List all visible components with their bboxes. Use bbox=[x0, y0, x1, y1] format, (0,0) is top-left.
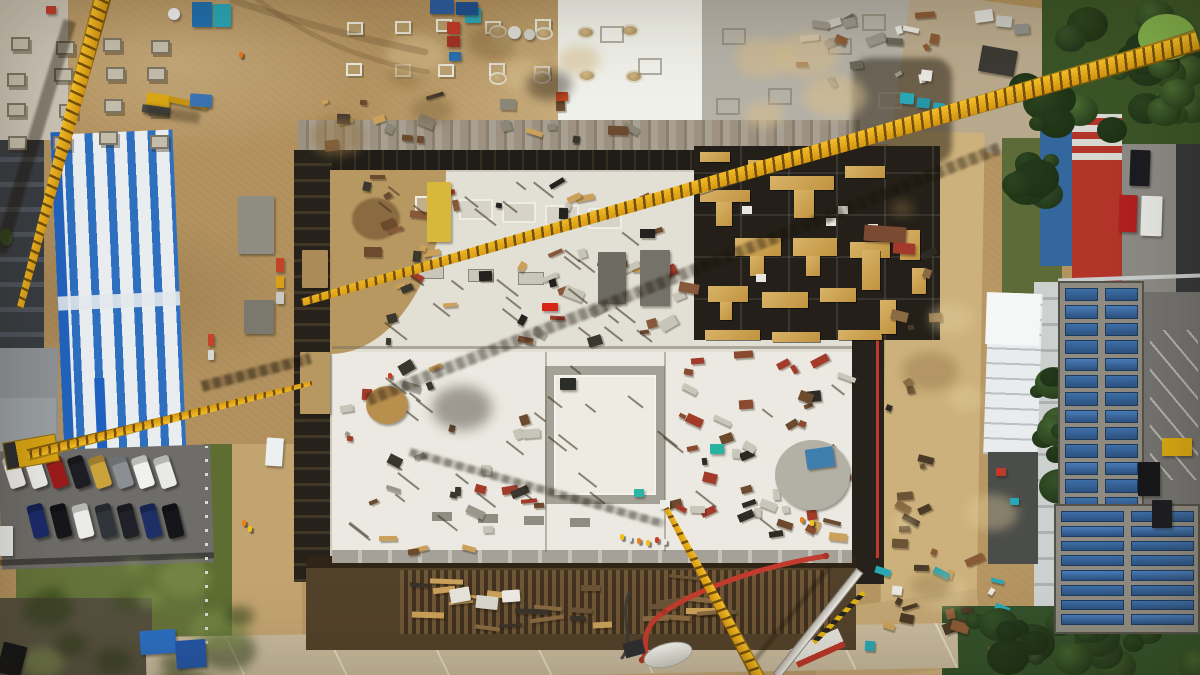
solar-panel bbox=[1105, 358, 1138, 371]
terrain-tone bbox=[912, 573, 951, 600]
plywood-form-panel bbox=[720, 302, 732, 320]
dark-van bbox=[1138, 462, 1160, 496]
concrete-footing bbox=[151, 40, 170, 54]
construction-material bbox=[739, 399, 753, 409]
worker bbox=[663, 539, 667, 545]
tent-bright-top bbox=[985, 292, 1041, 346]
construction-material bbox=[929, 33, 940, 44]
construction-material bbox=[534, 503, 544, 508]
construction-material bbox=[500, 99, 516, 110]
deck-white-bit bbox=[742, 206, 752, 214]
construction-material bbox=[643, 616, 669, 622]
concrete-footing bbox=[11, 37, 30, 51]
worker bbox=[800, 517, 804, 523]
solar-panel bbox=[1065, 288, 1098, 301]
construction-material bbox=[379, 536, 397, 542]
roadside-sign bbox=[208, 334, 214, 346]
concrete-footing bbox=[99, 131, 118, 145]
plywood-form-panel bbox=[716, 202, 732, 226]
construction-material bbox=[914, 564, 929, 570]
concrete-footing bbox=[7, 73, 26, 87]
plywood-form-panel bbox=[708, 286, 748, 302]
construction-material bbox=[690, 506, 705, 513]
tree-canopy bbox=[1123, 634, 1145, 652]
construction-material bbox=[921, 70, 933, 82]
solar-panel bbox=[1065, 444, 1098, 457]
red-equipment bbox=[542, 303, 558, 311]
slab-joint-vertical-1 bbox=[545, 352, 547, 552]
plywood-form-panel bbox=[700, 190, 750, 202]
terrain-tone bbox=[890, 200, 914, 217]
dark-van bbox=[1152, 500, 1172, 528]
trailer-white bbox=[1140, 196, 1162, 237]
car-white bbox=[0, 526, 13, 556]
tarp-bundle bbox=[502, 589, 521, 602]
teal-container bbox=[213, 4, 231, 27]
solar-panel bbox=[1105, 288, 1138, 301]
concrete-footing bbox=[104, 99, 123, 113]
construction-material bbox=[360, 100, 367, 105]
pit-wall-gap bbox=[302, 250, 328, 288]
construction-material bbox=[547, 124, 557, 131]
construction-material bbox=[865, 641, 876, 652]
construction-material bbox=[781, 506, 788, 514]
blue-container bbox=[192, 2, 212, 27]
solar-panel bbox=[1131, 614, 1194, 625]
terrain-tone bbox=[386, 34, 445, 75]
satellite-dish bbox=[168, 8, 180, 20]
plywood-form-panel bbox=[793, 238, 837, 256]
terrain-tone bbox=[55, 633, 87, 656]
slab-marking bbox=[722, 28, 746, 45]
solar-panel bbox=[1061, 511, 1124, 522]
construction-material bbox=[370, 175, 385, 179]
construction-material bbox=[701, 458, 707, 466]
cable-drum bbox=[524, 29, 535, 40]
solar-panel bbox=[1105, 305, 1138, 318]
brown-container bbox=[863, 225, 906, 244]
car-red bbox=[1118, 195, 1137, 233]
construction-material bbox=[430, 578, 463, 584]
solar-panel bbox=[1065, 427, 1098, 440]
teal-machine bbox=[899, 92, 914, 104]
construction-material bbox=[413, 250, 422, 261]
solar-panel bbox=[1105, 340, 1138, 353]
blue-container bbox=[430, 0, 454, 14]
roadside-panel bbox=[276, 292, 284, 304]
worker bbox=[248, 526, 252, 532]
construction-material bbox=[364, 247, 382, 257]
material-bundle bbox=[974, 9, 993, 23]
mini-excavator bbox=[710, 444, 724, 454]
crane-hook-shadow bbox=[432, 386, 492, 430]
roadside-panel bbox=[276, 276, 284, 288]
construction-material bbox=[570, 615, 586, 621]
red-container bbox=[447, 22, 460, 34]
construction-material bbox=[559, 208, 568, 219]
solar-panel bbox=[1065, 392, 1098, 405]
concrete-footing bbox=[535, 27, 553, 40]
plywood-form-panel bbox=[772, 332, 820, 342]
solar-panel bbox=[1131, 600, 1194, 611]
worker bbox=[637, 538, 641, 544]
roadside-sign bbox=[208, 350, 214, 360]
construction-material bbox=[417, 136, 425, 143]
plywood-form-panel bbox=[845, 166, 885, 178]
tree-canopy bbox=[1055, 25, 1086, 52]
plywood-form-panel bbox=[838, 330, 882, 340]
concrete-footing bbox=[150, 135, 169, 149]
teal-equipment bbox=[1010, 498, 1019, 505]
construction-site-aerial-photo bbox=[0, 0, 1200, 675]
concrete-footing bbox=[103, 38, 122, 52]
cable-drum bbox=[508, 26, 521, 39]
site-hut bbox=[238, 196, 274, 254]
solar-panel bbox=[1105, 410, 1138, 423]
solar-panel bbox=[1105, 462, 1138, 475]
concrete-footing bbox=[147, 67, 166, 81]
tree-canopy bbox=[996, 621, 1020, 641]
plywood-form-panel bbox=[770, 176, 834, 190]
red-equipment bbox=[46, 6, 56, 14]
worker bbox=[646, 540, 650, 546]
construction-material bbox=[581, 585, 600, 591]
concrete-footing bbox=[7, 103, 26, 117]
construction-material bbox=[454, 487, 460, 496]
concrete-footing bbox=[346, 63, 362, 76]
solar-panel bbox=[1061, 585, 1124, 596]
worker bbox=[239, 52, 243, 58]
solar-panel bbox=[1065, 462, 1098, 475]
construction-material bbox=[608, 126, 628, 136]
construction-material bbox=[732, 448, 740, 458]
red-equipment bbox=[996, 468, 1006, 476]
material-bundle bbox=[1014, 23, 1030, 34]
deck-white-bit bbox=[756, 274, 766, 282]
construction-material bbox=[892, 539, 909, 549]
plywood-form-panel bbox=[705, 330, 760, 340]
solar-panel bbox=[1131, 585, 1194, 596]
construction-material bbox=[648, 604, 677, 609]
solar-panel bbox=[1065, 375, 1098, 388]
construction-material bbox=[385, 338, 391, 345]
solar-panel bbox=[1131, 541, 1194, 552]
worker bbox=[655, 537, 659, 543]
solar-panel bbox=[1105, 427, 1138, 440]
concrete-pad bbox=[524, 516, 544, 525]
slab-marking bbox=[862, 14, 886, 31]
concrete-footing bbox=[395, 21, 411, 34]
construction-material bbox=[593, 621, 613, 628]
slab-marking bbox=[600, 26, 624, 43]
worker bbox=[620, 534, 624, 540]
terrain-tone bbox=[23, 592, 73, 627]
red-container bbox=[893, 242, 916, 255]
blue-container bbox=[175, 639, 207, 669]
solar-panel bbox=[1105, 375, 1138, 388]
slab-marking bbox=[878, 92, 902, 109]
material-bundle bbox=[995, 15, 1012, 28]
construction-material bbox=[408, 548, 419, 555]
truck-blue bbox=[190, 93, 213, 108]
solar-panel bbox=[1065, 305, 1098, 318]
solar-panel bbox=[1131, 555, 1194, 566]
construction-material bbox=[577, 248, 587, 259]
solar-panel bbox=[1065, 479, 1098, 492]
construction-material bbox=[401, 135, 413, 142]
tree-canopy bbox=[1002, 172, 1032, 198]
equipment-shadow bbox=[526, 70, 572, 100]
construction-material bbox=[897, 491, 913, 500]
terrain-tone bbox=[744, 101, 782, 128]
blue-container bbox=[139, 629, 177, 655]
yellow-vehicle bbox=[1162, 438, 1192, 456]
slab-marking bbox=[716, 98, 740, 115]
construction-material bbox=[573, 136, 581, 144]
red-container bbox=[447, 36, 460, 47]
solar-panel bbox=[1061, 570, 1124, 581]
terrain-tone bbox=[804, 75, 866, 118]
solar-panel bbox=[1065, 323, 1098, 336]
tree-canopy bbox=[1029, 116, 1047, 131]
parking-markings-east bbox=[1150, 330, 1198, 480]
solar-panel bbox=[1065, 340, 1098, 353]
solar-panel bbox=[1131, 570, 1194, 581]
solar-panel bbox=[1105, 479, 1138, 492]
construction-material bbox=[412, 611, 444, 618]
construction-material bbox=[892, 585, 903, 596]
construction-material bbox=[812, 20, 830, 29]
tree-canopy bbox=[1020, 631, 1049, 655]
blue-container bbox=[456, 2, 478, 15]
solar-panel bbox=[1105, 392, 1138, 405]
plywood-form-panel bbox=[806, 256, 820, 276]
construction-material bbox=[522, 428, 540, 438]
concrete-footing bbox=[106, 67, 125, 81]
terrain-tone bbox=[892, 515, 916, 532]
terrain-tone bbox=[310, 117, 366, 156]
solar-panel bbox=[1061, 600, 1124, 611]
terrain-tone bbox=[735, 38, 792, 78]
terrain-tone bbox=[225, 606, 254, 626]
tree-canopy bbox=[1097, 117, 1127, 143]
plywood-form-panel bbox=[794, 190, 814, 218]
site-hut bbox=[244, 300, 274, 334]
worker bbox=[810, 520, 814, 526]
worker bbox=[242, 520, 246, 526]
solar-panel bbox=[1061, 526, 1124, 537]
wire-fence bbox=[205, 446, 208, 644]
car-black bbox=[1129, 150, 1150, 187]
roadside-panel bbox=[276, 258, 284, 272]
solar-panel bbox=[1061, 541, 1124, 552]
terrain-tone bbox=[137, 590, 164, 609]
construction-material bbox=[496, 202, 503, 208]
teal-equipment bbox=[634, 489, 644, 497]
solar-panel bbox=[1105, 444, 1138, 457]
concrete-pad bbox=[570, 518, 590, 527]
terrain-tone bbox=[948, 386, 983, 411]
worker bbox=[388, 373, 392, 379]
construction-material bbox=[640, 229, 654, 238]
solar-panel bbox=[1065, 358, 1098, 371]
construction-material bbox=[478, 271, 491, 282]
terrain-tone bbox=[902, 352, 958, 391]
blue-item bbox=[449, 52, 461, 61]
core-equipment bbox=[560, 378, 576, 390]
construction-material bbox=[556, 100, 565, 110]
plywood-form-panel bbox=[862, 250, 880, 290]
solar-panel bbox=[1061, 614, 1124, 625]
solar-panel bbox=[1061, 555, 1124, 566]
solar-panel bbox=[1065, 410, 1098, 423]
construction-material bbox=[483, 526, 493, 533]
teal-machine bbox=[917, 97, 931, 108]
worker bbox=[628, 536, 632, 542]
construction-material bbox=[734, 350, 753, 359]
plywood-form-panel bbox=[700, 152, 730, 162]
slab-marking bbox=[638, 58, 662, 75]
tarp-bundle bbox=[475, 595, 498, 610]
terrain-tone bbox=[929, 303, 973, 334]
concrete-footing bbox=[347, 22, 363, 35]
rebar-mesh-yellow bbox=[427, 182, 451, 242]
construction-material bbox=[828, 532, 846, 542]
solar-panel bbox=[1105, 323, 1138, 336]
plywood-form-panel bbox=[820, 288, 856, 302]
plywood-form-panel bbox=[750, 256, 764, 276]
plywood-form-panel bbox=[762, 292, 808, 308]
tree-canopy bbox=[1054, 643, 1092, 675]
construction-material bbox=[572, 607, 592, 613]
car-white bbox=[265, 437, 284, 466]
water-basin bbox=[805, 446, 836, 470]
